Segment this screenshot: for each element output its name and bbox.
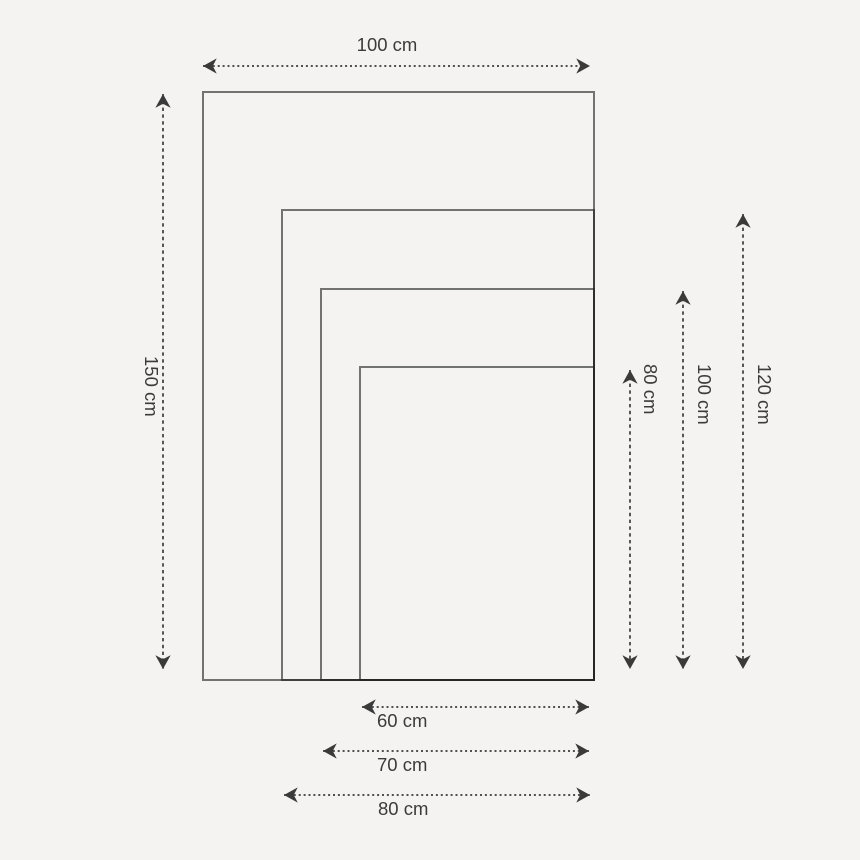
label-bottom-width-60: 60 cm [377, 710, 427, 732]
label-left-height-150: 150 cm [140, 356, 162, 417]
size-comparison-diagram: 100 cm 150 cm 80 cm 100 cm 120 cm 60 cm … [0, 0, 860, 860]
label-top-width-100: 100 cm [287, 34, 487, 56]
label-right-height-100: 100 cm [693, 364, 715, 425]
label-bottom-width-80: 80 cm [378, 798, 428, 820]
label-right-height-120: 120 cm [753, 364, 775, 425]
label-right-height-80: 80 cm [639, 364, 661, 414]
rect-60x80 [359, 366, 595, 681]
label-bottom-width-70: 70 cm [377, 754, 427, 776]
